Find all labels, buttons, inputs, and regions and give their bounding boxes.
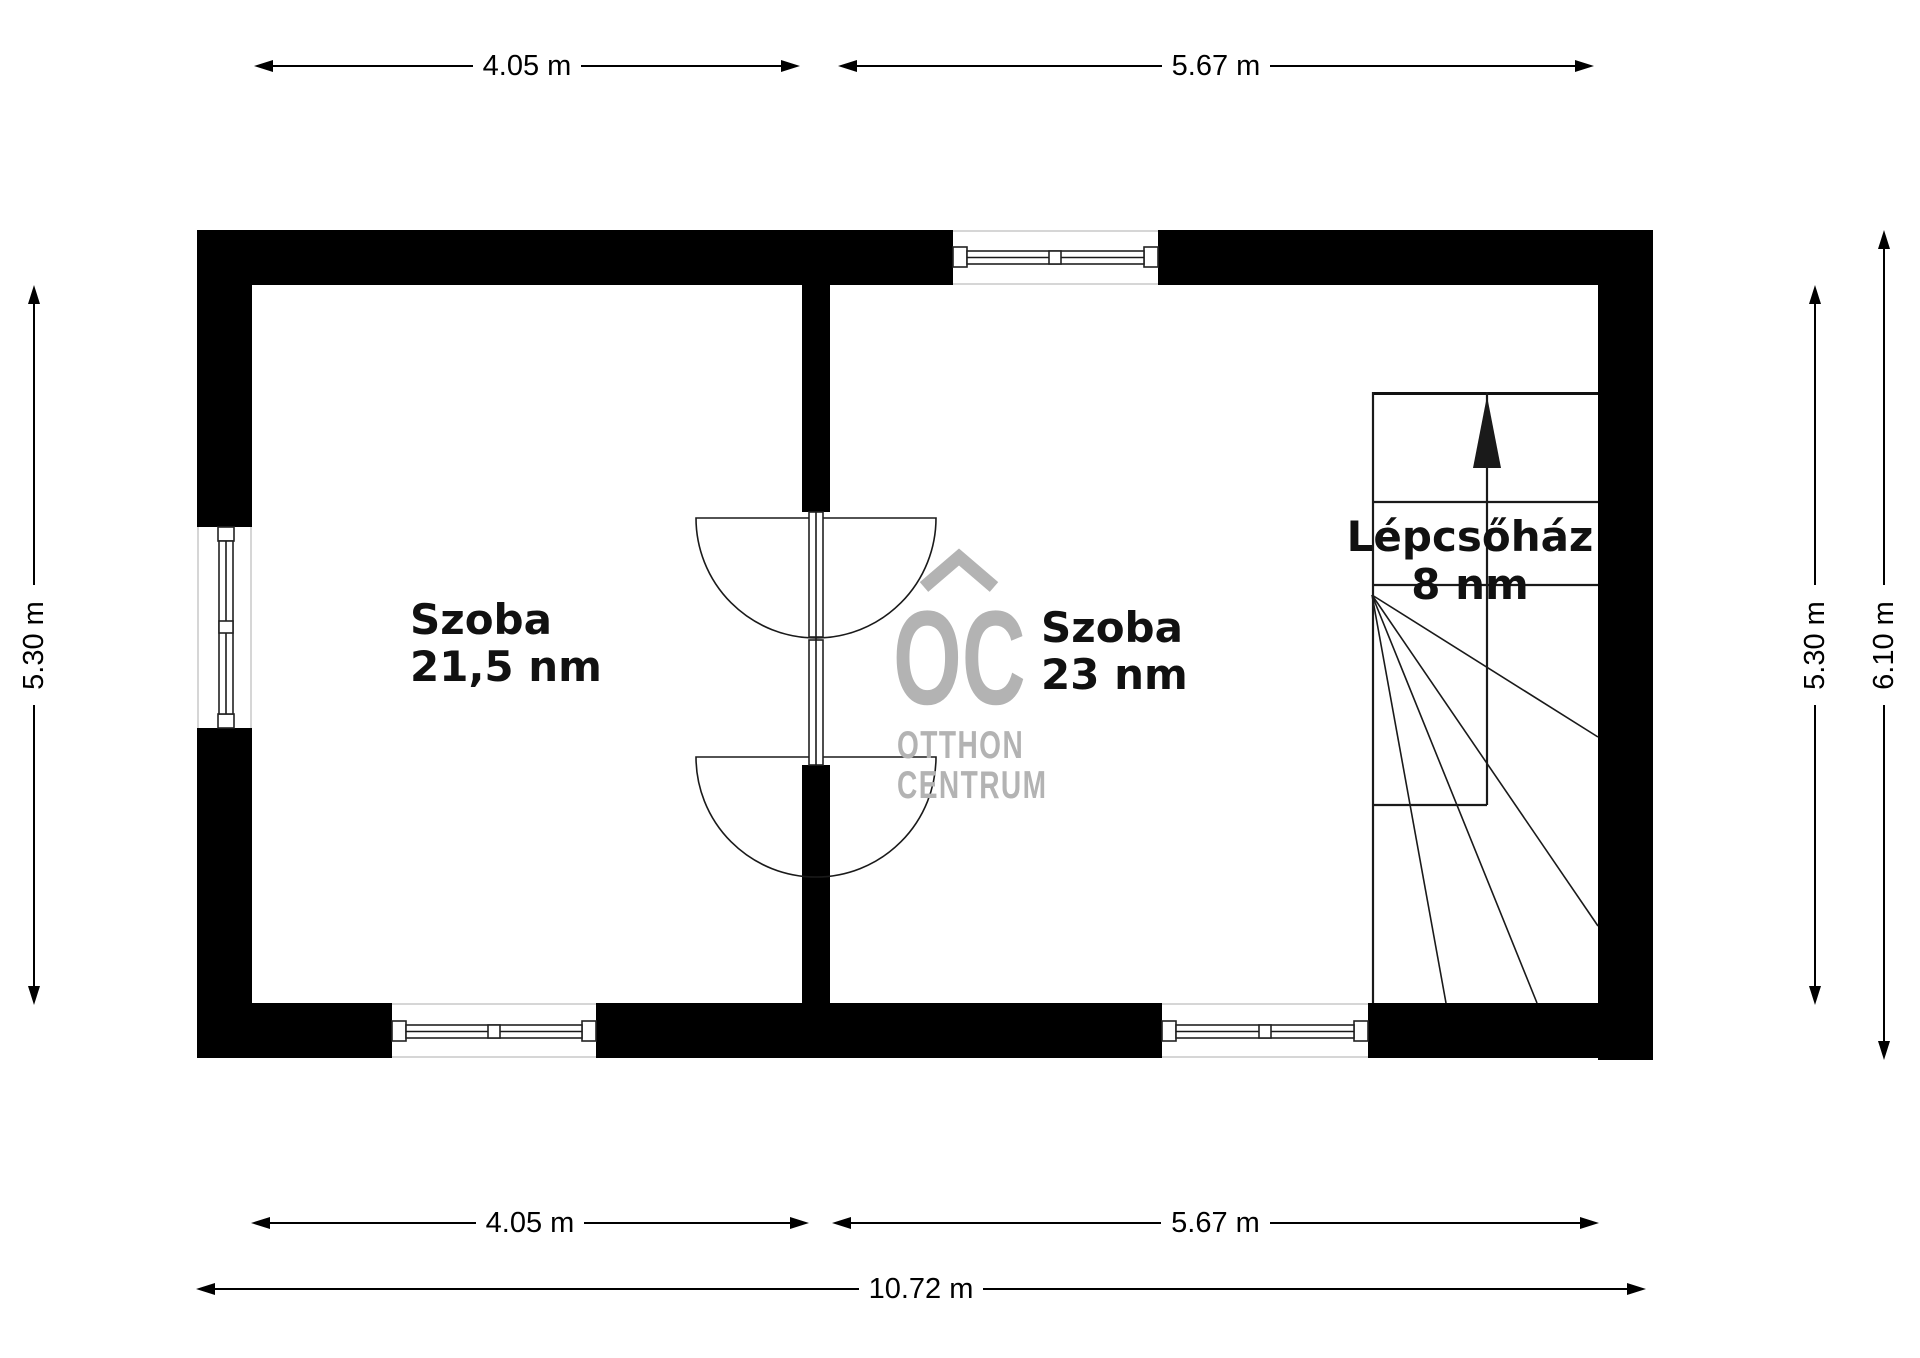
- dimension-bottom-total: 10.72 m: [196, 1283, 1646, 1295]
- arrow-right-icon: [1627, 1283, 1646, 1295]
- arrow-up-icon: [28, 285, 40, 304]
- arrow-right-icon: [1580, 1217, 1599, 1229]
- arrow-left-icon: [832, 1217, 851, 1229]
- bottom-window-right: [1162, 1004, 1368, 1057]
- room2-name: Szoba: [1041, 604, 1188, 651]
- dimension-value: 5.30 m: [1801, 591, 1830, 700]
- room2-area: 23 nm: [1041, 651, 1188, 698]
- dimension-value: 4.05 m: [473, 52, 582, 81]
- arrow-right-icon: [1575, 60, 1594, 72]
- dimension-bottom-right: 5.67 m: [832, 1217, 1599, 1229]
- stair-up-arrow-icon: [1473, 396, 1501, 468]
- arrow-down-icon: [28, 986, 40, 1005]
- arrow-left-icon: [196, 1283, 215, 1295]
- watermark-roof-icon: [924, 557, 994, 587]
- arrow-left-icon: [251, 1217, 270, 1229]
- dimension-bottom-left: 4.05 m: [251, 1217, 809, 1229]
- room1-label: Szoba 21,5 nm: [410, 596, 602, 690]
- room1-area: 21,5 nm: [410, 643, 602, 690]
- left-window: [198, 527, 251, 728]
- divider-wall-lower-segment: [802, 765, 830, 1003]
- floorplan-canvas: OC OTTHON CENTRUM Szoba 21,5 nm Szoba 23…: [0, 0, 1920, 1358]
- dimension-top-left: 4.05 m: [254, 60, 800, 72]
- dimension-value: 4.05 m: [476, 1209, 585, 1238]
- divider-wall-upper-segment: [802, 285, 830, 512]
- arrow-right-icon: [781, 60, 800, 72]
- dimension-value: 5.67 m: [1161, 1209, 1270, 1238]
- bottom-wall-right-segment: [1368, 1003, 1653, 1058]
- stair-winder-line: [1372, 595, 1446, 1003]
- watermark-brand-line2: CENTRUM: [897, 766, 1047, 805]
- watermark-brand-line1: OTTHON: [897, 726, 1024, 765]
- arrow-left-icon: [838, 60, 857, 72]
- left-wall-upper-segment: [197, 285, 252, 527]
- dimension-value: 10.72 m: [859, 1275, 984, 1304]
- watermark-logo: OC: [893, 592, 1026, 726]
- top-window: [953, 231, 1158, 284]
- dimension-value: 6.10 m: [1870, 591, 1899, 700]
- arrow-right-icon: [790, 1217, 809, 1229]
- top-wall-left-segment: [197, 230, 953, 285]
- dimension-value: 5.67 m: [1162, 52, 1271, 81]
- stairwell-area: 8 nm: [1340, 561, 1600, 609]
- right-wall: [1598, 285, 1653, 1060]
- dimension-value: 5.30 m: [20, 591, 49, 700]
- room2-label: Szoba 23 nm: [1041, 604, 1188, 698]
- dimension-top-right: 5.67 m: [838, 60, 1594, 72]
- left-wall-lower-segment: [197, 728, 252, 1003]
- room1-name: Szoba: [410, 596, 602, 643]
- arrow-up-icon: [1878, 230, 1890, 249]
- arrow-up-icon: [1809, 285, 1821, 304]
- bottom-window-left: [392, 1004, 596, 1057]
- top-wall-right-segment: [1158, 230, 1653, 285]
- dimension-right-outer: 6.10 m: [1878, 230, 1890, 1060]
- dimension-right-inner: 5.30 m: [1809, 285, 1821, 1005]
- dimension-left-inner: 5.30 m: [28, 285, 40, 1005]
- bottom-wall-mid-segment: [596, 1003, 1162, 1058]
- stair-winder-line: [1372, 595, 1598, 737]
- arrow-down-icon: [1878, 1041, 1890, 1060]
- staircase: [1372, 392, 1598, 1003]
- arrow-down-icon: [1809, 986, 1821, 1005]
- stairwell-label: Lépcsőház 8 nm: [1340, 513, 1600, 609]
- bottom-wall-left-segment: [197, 1003, 392, 1058]
- arrow-left-icon: [254, 60, 273, 72]
- stairwell-name: Lépcsőház: [1340, 513, 1600, 561]
